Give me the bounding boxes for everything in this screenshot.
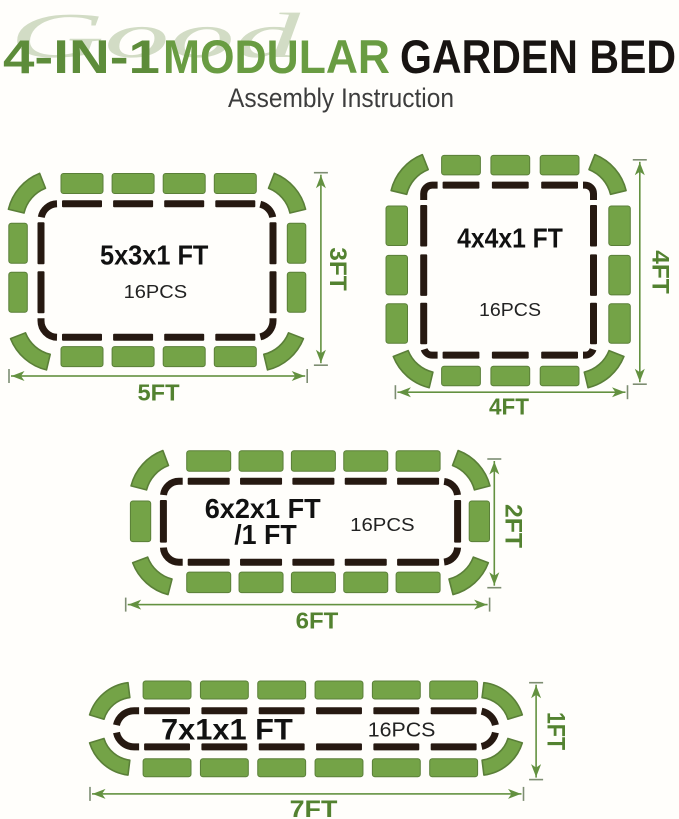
- svg-text:4x4x1 FT: 4x4x1 FT: [457, 223, 563, 254]
- svg-text:5FT: 5FT: [138, 379, 181, 405]
- svg-text:/1 FT: /1 FT: [234, 519, 297, 550]
- svg-text:16PCS: 16PCS: [124, 281, 188, 302]
- svg-text:16PCS: 16PCS: [350, 514, 415, 535]
- svg-text:7x1x1 FT: 7x1x1 FT: [161, 714, 293, 747]
- svg-text:16PCS: 16PCS: [368, 719, 436, 741]
- svg-text:MODULAR: MODULAR: [163, 30, 390, 83]
- svg-text:5x3x1 FT: 5x3x1 FT: [100, 239, 208, 270]
- svg-text:4-IN-1: 4-IN-1: [3, 30, 160, 83]
- svg-text:4FT: 4FT: [647, 250, 674, 294]
- svg-text:4FT: 4FT: [489, 393, 530, 419]
- svg-text:6FT: 6FT: [296, 607, 339, 633]
- svg-text:GARDEN BED: GARDEN BED: [400, 30, 676, 83]
- svg-text:3FT: 3FT: [324, 247, 351, 291]
- svg-text:Assembly Instruction: Assembly Instruction: [228, 83, 454, 113]
- svg-text:16PCS: 16PCS: [479, 299, 541, 320]
- svg-text:1FT: 1FT: [542, 712, 570, 750]
- svg-text:2FT: 2FT: [500, 504, 527, 548]
- svg-text:7FT: 7FT: [290, 796, 338, 819]
